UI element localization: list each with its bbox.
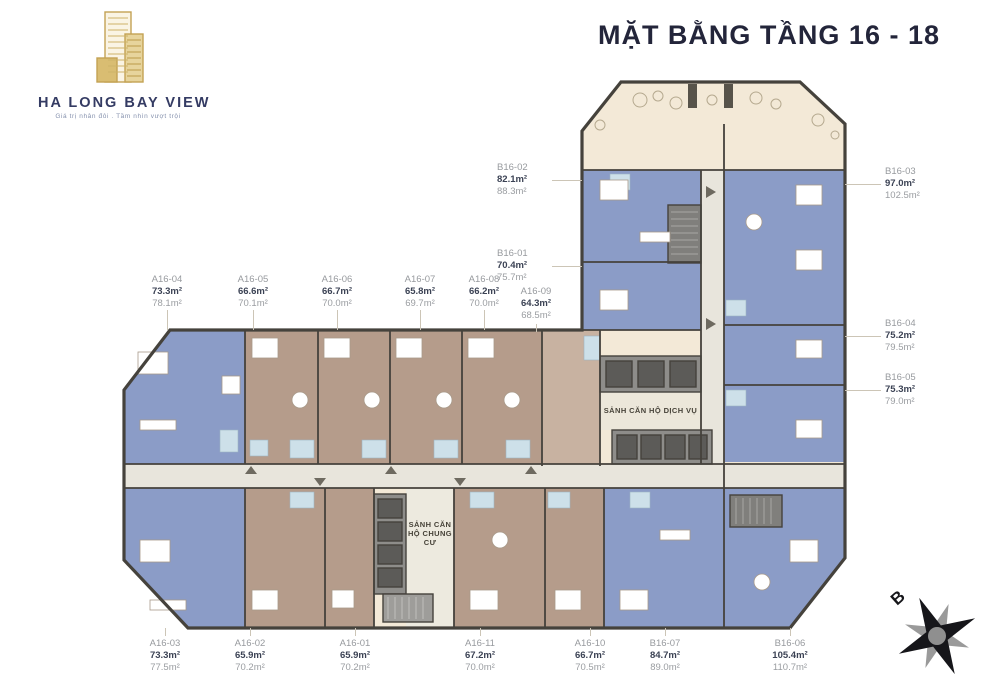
unit-area-gross: 70.2m² (218, 662, 282, 674)
unit-id: A16-11 (448, 638, 512, 650)
unit-area-gross: 79.0m² (885, 396, 949, 408)
unit-id: B16-03 (885, 166, 949, 178)
unit-id: B16-07 (633, 638, 697, 650)
label-leader-line (165, 628, 166, 636)
unit-label: B16-06 105.4m² 110.7m² (758, 638, 822, 674)
label-leader-line (665, 628, 666, 636)
unit-area-gross: 75.7m² (497, 272, 561, 284)
unit-area-gross: 89.0m² (633, 662, 697, 674)
unit-area-net: 84.7m² (633, 650, 697, 662)
label-leader-line (484, 310, 485, 330)
unit-area-net: 66.7m² (558, 650, 622, 662)
unit-area-gross: 78.1m² (135, 298, 199, 310)
unit-area-gross: 110.7m² (758, 662, 822, 674)
unit-area-net: 75.3m² (885, 384, 949, 396)
unit-area-net: 66.7m² (305, 286, 369, 298)
unit-area-net: 73.3m² (133, 650, 197, 662)
unit-label: A16-05 66.6m² 70.1m² (221, 274, 285, 310)
label-leader-line (355, 628, 356, 636)
unit-area-gross: 79.5m² (885, 342, 949, 354)
unit-label: B16-03 97.0m² 102.5m² (885, 166, 949, 202)
unit-label: A16-04 73.3m² 78.1m² (135, 274, 199, 310)
unit-area-net: 66.6m² (221, 286, 285, 298)
unit-area-net: 97.0m² (885, 178, 949, 190)
unit-id: B16-02 (497, 162, 561, 174)
unit-label: A16-03 73.3m² 77.5m² (133, 638, 197, 674)
compass-north-label: B (887, 587, 909, 609)
unit-area-net: 65.9m² (323, 650, 387, 662)
unit-area-gross: 88.3m² (497, 186, 561, 198)
unit-area-net: 67.2m² (448, 650, 512, 662)
label-leader-line (590, 628, 591, 636)
label-leader-line (337, 310, 338, 330)
unit-label: A16-02 65.9m² 70.2m² (218, 638, 282, 674)
unit-id: A16-06 (305, 274, 369, 286)
unit-area-net: 65.8m² (388, 286, 452, 298)
unit-label: A16-06 66.7m² 70.0m² (305, 274, 369, 310)
unit-area-net: 73.3m² (135, 286, 199, 298)
unit-labels-layer: A16-04 73.3m² 78.1m² A16-05 66.6m² 70.1m… (0, 0, 1000, 700)
unit-area-gross: 69.7m² (388, 298, 452, 310)
unit-label: A16-01 65.9m² 70.2m² (323, 638, 387, 674)
unit-id: A16-02 (218, 638, 282, 650)
unit-area-net: 65.9m² (218, 650, 282, 662)
unit-id: B16-06 (758, 638, 822, 650)
floor-plan-poster: HA LONG BAY VIEW Giá trị nhân đôi . Tầm … (0, 0, 1000, 700)
unit-id: A16-10 (558, 638, 622, 650)
unit-id: A16-04 (135, 274, 199, 286)
label-leader-line (253, 310, 254, 330)
unit-id: B16-05 (885, 372, 949, 384)
unit-label: B16-05 75.3m² 79.0m² (885, 372, 949, 408)
label-leader-line (845, 336, 881, 337)
label-leader-line (790, 628, 791, 636)
unit-area-net: 64.3m² (504, 298, 568, 310)
unit-label: A16-10 66.7m² 70.5m² (558, 638, 622, 674)
unit-label: A16-07 65.8m² 69.7m² (388, 274, 452, 310)
unit-area-gross: 102.5m² (885, 190, 949, 202)
unit-id: A16-03 (133, 638, 197, 650)
label-leader-line (845, 184, 881, 185)
unit-label: B16-04 75.2m² 79.5m² (885, 318, 949, 354)
label-leader-line (552, 180, 582, 181)
unit-area-gross: 70.0m² (448, 662, 512, 674)
unit-id: B16-04 (885, 318, 949, 330)
label-leader-line (480, 628, 481, 636)
unit-label: B16-07 84.7m² 89.0m² (633, 638, 697, 674)
label-leader-line (420, 310, 421, 330)
label-leader-line (536, 324, 537, 332)
unit-id: A16-01 (323, 638, 387, 650)
unit-label: A16-11 67.2m² 70.0m² (448, 638, 512, 674)
unit-id: B16-01 (497, 248, 561, 260)
label-leader-line (552, 266, 582, 267)
unit-area-net: 105.4m² (758, 650, 822, 662)
unit-area-gross: 68.5m² (504, 310, 568, 322)
label-leader-line (250, 628, 251, 636)
compass-icon: B (880, 572, 990, 684)
unit-id: A16-05 (221, 274, 285, 286)
unit-id: A16-07 (388, 274, 452, 286)
unit-label: A16-09 64.3m² 68.5m² (504, 286, 568, 322)
unit-area-gross: 77.5m² (133, 662, 197, 674)
unit-area-net: 75.2m² (885, 330, 949, 342)
unit-area-gross: 70.1m² (221, 298, 285, 310)
unit-area-gross: 70.2m² (323, 662, 387, 674)
unit-id: A16-09 (504, 286, 568, 298)
label-leader-line (845, 390, 881, 391)
unit-area-gross: 70.5m² (558, 662, 622, 674)
label-leader-line (167, 310, 168, 330)
unit-area-gross: 70.0m² (305, 298, 369, 310)
